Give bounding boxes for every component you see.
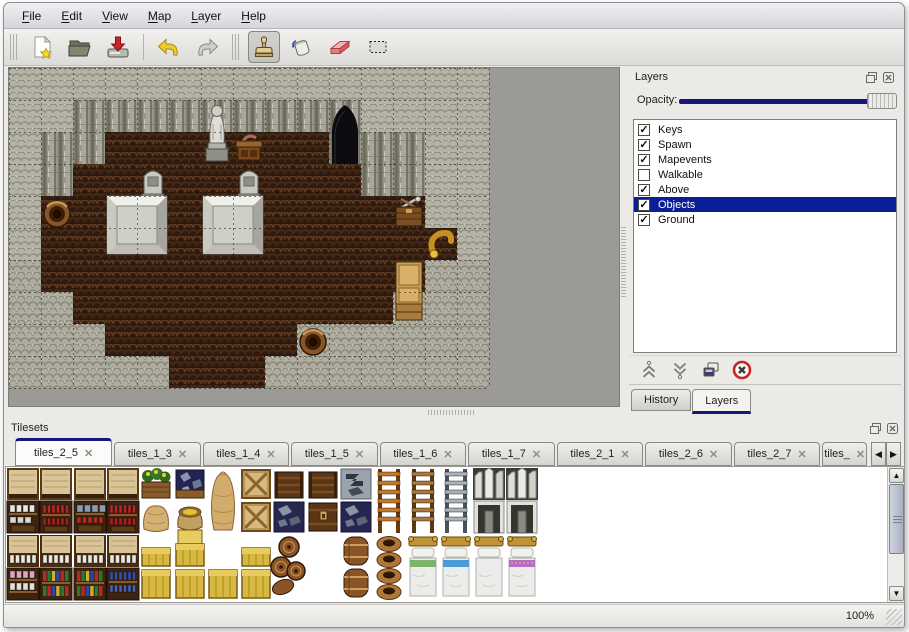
float-panel-icon[interactable]: [869, 422, 882, 435]
app-window: FileEditViewMapLayerHelp: [3, 2, 905, 628]
tile-shelf-top: [74, 468, 106, 500]
tile-shelf-jars: [7, 568, 39, 600]
resize-grip[interactable]: [886, 609, 902, 625]
map-canvas[interactable]: [9, 68, 619, 407]
tile-arch-top: [506, 468, 538, 500]
tile-planter-blue: [176, 470, 204, 498]
tileset-tab-tiles_1_4[interactable]: tiles_1_4✕: [203, 442, 290, 466]
tileset-tab-tiles_1_5[interactable]: tiles_1_5✕: [291, 442, 378, 466]
close-tab-icon[interactable]: ✕: [856, 448, 865, 461]
toolbar: [4, 29, 904, 66]
close-tab-icon[interactable]: ✕: [532, 448, 541, 461]
tileset-tab-label: tiles_2_7: [747, 448, 791, 460]
tile-ladder-steel: [445, 469, 467, 533]
stamp-icon: [251, 34, 277, 60]
fill-tool-button[interactable]: [286, 31, 318, 63]
redo-tool-button[interactable]: [191, 31, 223, 63]
toolbar-tools-group: [245, 31, 397, 63]
layer-row-keys[interactable]: ✓Keys: [634, 122, 896, 137]
layer-list[interactable]: ✓Keys✓Spawn✓MapeventsWalkable✓Above✓Obje…: [633, 119, 897, 353]
tile-barrel-stack: [344, 537, 368, 597]
move-up-layer-button[interactable]: [637, 359, 661, 381]
tab-scroll-buttons: ◀ ▶: [871, 442, 901, 466]
opacity-label: Opacity:: [637, 94, 677, 106]
close-tab-icon[interactable]: ✕: [355, 448, 364, 461]
save-tool-button[interactable]: [102, 31, 134, 63]
open-tool-button[interactable]: [64, 31, 96, 63]
layer-visibility-checkbox[interactable]: ✓: [638, 184, 650, 196]
layer-row-ground[interactable]: ✓Ground: [634, 212, 896, 227]
tile-bed: [409, 537, 438, 597]
layers-panel-titlebar: Layers: [629, 67, 901, 87]
close-tab-icon[interactable]: ✕: [709, 448, 718, 461]
toolbar-grip-2[interactable]: [232, 34, 239, 60]
select-icon: [365, 34, 391, 60]
tile-pot-stack: [377, 537, 401, 600]
open-icon: [67, 34, 93, 60]
tile-shelf-books: [74, 568, 106, 600]
move-down-layer-button[interactable]: [668, 359, 692, 381]
tile-crate-yellow-tall: [176, 530, 204, 566]
tile-shelf-books: [40, 568, 72, 600]
toolbar-grip[interactable]: [10, 34, 17, 60]
scroll-up-button[interactable]: ▲: [889, 468, 904, 483]
opacity-slider-track[interactable]: [679, 99, 895, 104]
tile-chest-top: [275, 472, 303, 498]
eraser-icon: [327, 34, 353, 60]
layer-visibility-checkbox[interactable]: ✓: [638, 139, 650, 151]
menu-bar: FileEditViewMapLayerHelp: [4, 3, 904, 29]
tile-arch-door: [507, 501, 537, 533]
undo-icon: [156, 34, 182, 60]
tile-shelf-top-jars: [7, 535, 39, 567]
tileset-tab-tiles_1_7[interactable]: tiles_1_7✕: [468, 442, 555, 466]
fill-icon: [289, 34, 315, 60]
tile-bed: [475, 537, 504, 597]
duplicate-layer-button[interactable]: [699, 359, 723, 381]
tile-metal-navy: [341, 502, 371, 532]
layers-panel: Layers Opacity: ✓Keys✓Spawn✓MapeventsWal…: [629, 67, 901, 415]
tile-shelf-top-jars: [107, 535, 139, 567]
menu-help[interactable]: Help: [231, 5, 276, 27]
tile-metal-navy: [274, 502, 304, 532]
tileset-tab-label: tiles_1_6: [393, 448, 437, 460]
tile-ladder-orange: [378, 469, 400, 533]
tileset-tab-label: tiles_1_3: [128, 448, 172, 460]
new-tool-button[interactable]: [26, 31, 58, 63]
close-tab-icon[interactable]: ✕: [178, 448, 187, 461]
tilesets-panel-title: Tilesets: [11, 422, 865, 434]
dock-tab-bar: HistoryLayers: [631, 389, 752, 413]
close-panel-icon[interactable]: [886, 422, 899, 435]
tileset-scrollbar[interactable]: ▲ ▼: [887, 467, 904, 602]
stamp-tool-button[interactable]: [248, 31, 280, 63]
tileset-tab-tiles_1_3[interactable]: tiles_1_3✕: [114, 442, 201, 466]
layer-row-spawn[interactable]: ✓Spawn: [634, 137, 896, 152]
tile-shelf-top: [7, 468, 39, 500]
tileset-tab-tiles_2_7[interactable]: tiles_2_7✕: [734, 442, 821, 466]
redo-icon: [194, 34, 220, 60]
scroll-tabs-left-button[interactable]: ◀: [871, 442, 886, 466]
tile-barrel-group: [270, 537, 305, 597]
tile-shelf-top: [107, 468, 139, 500]
tileset-tab-label: tiles_2_1: [570, 448, 614, 460]
layer-row-walkable[interactable]: Walkable: [634, 167, 896, 182]
tile-crate-x: [242, 470, 270, 498]
status-bar: 100%: [4, 604, 904, 627]
tile-ladder-brown: [412, 469, 434, 533]
opacity-slider[interactable]: [679, 91, 897, 111]
layer-name: Walkable: [658, 169, 703, 181]
opacity-row: Opacity:: [629, 89, 901, 113]
opacity-slider-handle[interactable]: [867, 93, 897, 109]
toolbar-file-group: [23, 31, 137, 63]
layer-actions: [629, 355, 901, 385]
toolbar-separator: [143, 34, 144, 60]
tile-chest-front: [309, 503, 337, 531]
tile-shelf-top-jars: [74, 535, 106, 567]
tile-sack-tall: [212, 472, 235, 530]
tile-planter-yellow: [142, 468, 171, 498]
eraser-tool-button[interactable]: [324, 31, 356, 63]
layer-visibility-checkbox[interactable]: [638, 169, 650, 181]
new-icon: [29, 34, 55, 60]
tile-shelf-bottles-red: [40, 501, 72, 533]
scroll-tabs-right-button[interactable]: ▶: [886, 442, 901, 466]
close-tab-icon[interactable]: ✕: [266, 448, 275, 461]
layer-row-objects[interactable]: ✓Objects: [634, 197, 896, 212]
tilesets-panel-titlebar: Tilesets: [5, 418, 905, 438]
tile-shelf-top-jars: [40, 535, 72, 567]
tileset-tab-label: tiles_1_4: [216, 448, 260, 460]
tile-shelf-bottles-blue: [107, 568, 139, 600]
tile-chest-top: [309, 472, 337, 498]
layer-name: Keys: [658, 124, 682, 136]
tile-crate-yellow-half: [242, 548, 270, 566]
tile-bed: [508, 537, 537, 597]
undo-tool-button[interactable]: [153, 31, 185, 63]
close-tab-icon[interactable]: ✕: [620, 448, 629, 461]
vertical-splitter[interactable]: [619, 67, 628, 407]
delete-layer-button[interactable]: [730, 359, 754, 381]
tileset-tab-label: tiles_: [824, 448, 850, 460]
map-viewport[interactable]: [8, 67, 620, 407]
tileset-tab-tiles[interactable]: tiles_✕: [822, 442, 867, 466]
tileset-palette[interactable]: ▲ ▼: [5, 466, 905, 603]
layer-row-above[interactable]: ✓Above: [634, 182, 896, 197]
tile-shelf-top: [40, 468, 72, 500]
toolbar-history-group: [150, 31, 226, 63]
tileset-tab-label: tiles_2_5: [34, 447, 78, 459]
layer-name: Above: [658, 184, 689, 196]
menu-file[interactable]: File: [12, 5, 51, 27]
save-icon: [105, 34, 131, 60]
close-tab-icon[interactable]: ✕: [797, 448, 806, 461]
float-panel-icon[interactable]: [865, 71, 878, 84]
layer-visibility-checkbox[interactable]: ✓: [638, 124, 650, 136]
tile-shelf-pots: [74, 501, 106, 533]
layer-name: Mapevents: [658, 154, 712, 166]
tileset-tab-tiles_2_5[interactable]: tiles_2_5✕: [15, 438, 112, 466]
tileset-tab-label: tiles_1_5: [305, 448, 349, 460]
menu-view[interactable]: View: [92, 5, 138, 27]
tile-crate-yellow: [142, 570, 170, 598]
dock-tab-history[interactable]: History: [631, 389, 691, 411]
layer-visibility-checkbox[interactable]: ✓: [638, 199, 650, 211]
layer-visibility-checkbox[interactable]: ✓: [638, 214, 650, 226]
tile-metal-scrap: [341, 469, 371, 499]
tile-bed: [442, 537, 471, 597]
close-panel-icon[interactable]: [882, 71, 895, 84]
close-tab-icon[interactable]: ✕: [84, 447, 93, 460]
tile-crate-yellow-half: [142, 548, 170, 566]
zoom-level: 100%: [846, 610, 874, 622]
tileset-tab-bar: tiles_2_5✕tiles_1_3✕tiles_1_4✕tiles_1_5✕…: [15, 438, 869, 466]
layer-name: Spawn: [658, 139, 692, 151]
menu-edit[interactable]: Edit: [51, 5, 92, 27]
delete-icon: [731, 359, 753, 381]
move-down-icon: [669, 359, 691, 381]
tile-crate-x: [242, 503, 270, 531]
close-tab-icon[interactable]: ✕: [443, 448, 452, 461]
layer-name: Objects: [658, 199, 695, 211]
layer-visibility-checkbox[interactable]: ✓: [638, 154, 650, 166]
tile-arch-top: [473, 468, 505, 500]
duplicate-icon: [700, 359, 722, 381]
tileset-tab-tiles_1_6[interactable]: tiles_1_6✕: [380, 442, 467, 466]
menu-map[interactable]: Map: [138, 5, 181, 27]
tile-sack-big: [144, 506, 169, 532]
layer-row-mapevents[interactable]: ✓Mapevents: [634, 152, 896, 167]
layers-panel-title: Layers: [635, 71, 861, 83]
layer-name: Ground: [658, 214, 695, 226]
tile-crate-yellow: [176, 570, 204, 598]
tile-shelf-bottles-red: [107, 501, 139, 533]
horizontal-splitter[interactable]: [8, 407, 620, 418]
tileset-tab-label: tiles_1_7: [482, 448, 526, 460]
scroll-down-button[interactable]: ▼: [889, 586, 904, 601]
move-up-icon: [638, 359, 660, 381]
dock-tab-layers[interactable]: Layers: [692, 389, 751, 414]
select-tool-button[interactable]: [362, 31, 394, 63]
tile-sack-open: [178, 507, 202, 530]
tileset-grid[interactable]: [6, 467, 886, 603]
tileset-tab-tiles_2_6[interactable]: tiles_2_6✕: [645, 442, 732, 466]
tileset-tab-tiles_2_1[interactable]: tiles_2_1✕: [557, 442, 644, 466]
scrollbar-thumb[interactable]: [889, 484, 904, 554]
menu-layer[interactable]: Layer: [181, 5, 231, 27]
tilesets-panel: Tilesets tiles_2_5✕tiles_1_3✕tiles_1_4✕t…: [5, 418, 905, 606]
tile-shelf-dishes: [7, 501, 39, 533]
tileset-tab-label: tiles_2_6: [659, 448, 703, 460]
tile-crate-yellow: [209, 570, 237, 598]
tile-crate-yellow: [242, 570, 270, 598]
tile-arch-door: [474, 501, 504, 533]
